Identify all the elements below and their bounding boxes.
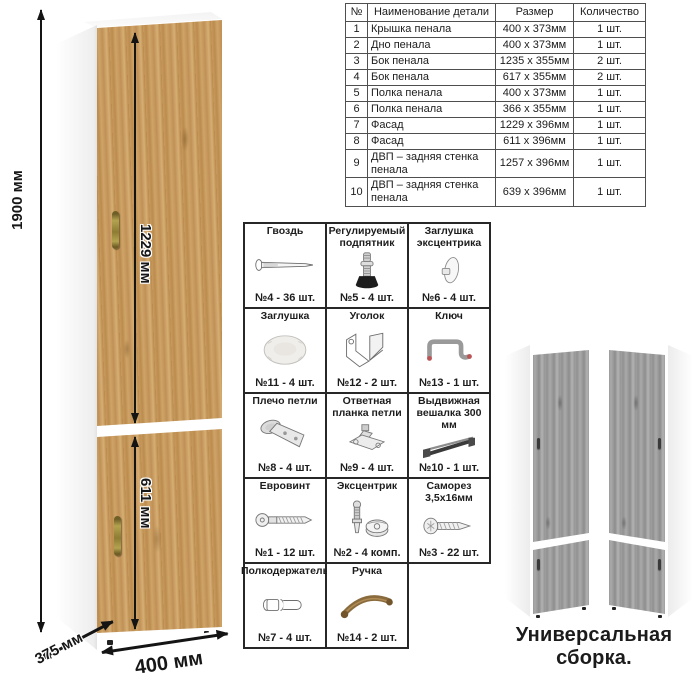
hardware-item: Полкодержатель №7 - 4 шт. bbox=[245, 564, 327, 649]
hardware-item-qty: №14 - 2 шт. bbox=[337, 632, 397, 644]
part-qty: 1 шт. bbox=[574, 38, 646, 54]
part-size: 400 x 373мм bbox=[496, 38, 574, 54]
part-name: Фасад bbox=[368, 134, 496, 150]
part-qty: 1 шт. bbox=[574, 134, 646, 150]
part-number: 2 bbox=[346, 38, 368, 54]
part-size: 611 x 396мм bbox=[496, 134, 574, 150]
pullout-hanger-icon bbox=[419, 431, 479, 462]
hardware-item-name: Ключ bbox=[435, 311, 463, 323]
variant-foot bbox=[536, 615, 540, 618]
hardware-item-name: Ответная планка петли bbox=[328, 396, 406, 420]
upper-door-dimension-label: 1229 мм bbox=[137, 224, 154, 284]
hex-key-icon bbox=[423, 323, 475, 377]
hardware-item-name: Полкодержатель bbox=[241, 566, 329, 578]
corner-bracket-icon bbox=[341, 323, 393, 377]
variant-door-handle bbox=[537, 559, 540, 570]
part-size: 1229 x 396мм bbox=[496, 118, 574, 134]
hardware-item: Ручка №14 - 2 шт. bbox=[327, 564, 409, 649]
part-name: Полка пенала bbox=[368, 102, 496, 118]
table-row: 3Бок пенала1235 x 355мм2 шт. bbox=[346, 54, 646, 70]
hardware-item-name: Эксцентрик bbox=[337, 481, 397, 493]
part-qty: 1 шт. bbox=[574, 102, 646, 118]
self-tapping-screw-icon bbox=[421, 505, 477, 548]
part-qty: 1 шт. bbox=[574, 178, 646, 206]
width-dimension-label: 400 мм bbox=[112, 644, 226, 683]
part-size: 617 x 355мм bbox=[496, 70, 574, 86]
part-name: ДВП – задняя стенка пенала bbox=[368, 178, 496, 206]
part-name: Фасад bbox=[368, 118, 496, 134]
hardware-item: Выдвижная вешалка 300 мм №10 - 1 шт. bbox=[409, 394, 491, 479]
table-row: 10ДВП – задняя стенка пенала639 x 396мм1… bbox=[346, 178, 646, 206]
cam-cover-icon bbox=[432, 250, 466, 293]
hardware-item-qty: №7 - 4 шт. bbox=[258, 632, 312, 644]
part-size: 366 x 355мм bbox=[496, 102, 574, 118]
part-size: 400 x 373мм bbox=[496, 22, 574, 38]
table-row: 8Фасад611 x 396мм1 шт. bbox=[346, 134, 646, 150]
variant-left-side-panel bbox=[505, 345, 530, 617]
table-row: 9ДВП – задняя стенка пенала1257 x 396мм1… bbox=[346, 150, 646, 178]
part-size: 400 x 373мм bbox=[496, 86, 574, 102]
variant-door-handle bbox=[658, 438, 661, 449]
hardware-item-name: Уголок bbox=[350, 311, 385, 323]
variant-right-front bbox=[606, 343, 668, 620]
col-header-number: № bbox=[346, 4, 368, 22]
hardware-item-name: Гвоздь bbox=[267, 226, 304, 238]
hardware-item-qty: №2 - 4 комп. bbox=[333, 547, 400, 559]
hardware-item-name: Заглушка bbox=[261, 311, 310, 323]
hardware-item-qty: №3 - 22 шт. bbox=[419, 547, 479, 559]
hardware-item-name: Регулируемый подпятник bbox=[328, 226, 406, 250]
part-qty: 1 шт. bbox=[574, 86, 646, 102]
hardware-item-qty: №12 - 2 шт. bbox=[337, 377, 397, 389]
hardware-grid: Гвоздь №4 - 36 шт. Регулируемый подпятни… bbox=[243, 222, 491, 649]
col-header-size: Размер bbox=[496, 4, 574, 22]
height-dimension-arrow bbox=[40, 10, 42, 632]
table-row: 4Бок пенала617 x 355мм2 шт. bbox=[346, 70, 646, 86]
part-size: 639 x 396мм bbox=[496, 178, 574, 206]
hardware-item: Евровинт №1 - 12 шт. bbox=[245, 479, 327, 564]
hardware-item-qty: №5 - 4 шт. bbox=[340, 292, 394, 304]
variant-foot bbox=[582, 607, 586, 610]
variant-door-handle bbox=[537, 438, 540, 449]
table-row: 1Крышка пенала400 x 373мм1 шт. bbox=[346, 22, 646, 38]
part-name: Бок пенала bbox=[368, 70, 496, 86]
part-number: 4 bbox=[346, 70, 368, 86]
part-number: 6 bbox=[346, 102, 368, 118]
hardware-item-qty: №1 - 12 шт. bbox=[255, 547, 315, 559]
part-qty: 1 шт. bbox=[574, 22, 646, 38]
hinge-arm-icon bbox=[257, 408, 313, 462]
part-name: ДВП – задняя стенка пенала bbox=[368, 150, 496, 178]
table-row: 5Полка пенала400 x 373мм1 шт. bbox=[346, 86, 646, 102]
part-number: 5 bbox=[346, 86, 368, 102]
parts-table: № Наименование детали Размер Количество … bbox=[345, 3, 646, 207]
variant-cabinet-left bbox=[505, 335, 600, 620]
hardware-item-qty: №6 - 4 шт. bbox=[422, 292, 476, 304]
hardware-item-name: Заглушка эксцентрика bbox=[410, 226, 488, 250]
table-row: 2Дно пенала400 x 373мм1 шт. bbox=[346, 38, 646, 54]
hardware-item: Плечо петли №8 - 4 шт. bbox=[245, 394, 327, 479]
table-row: 7Фасад1229 x 396мм1 шт. bbox=[346, 118, 646, 134]
hardware-item-qty: №8 - 4 шт. bbox=[258, 462, 312, 474]
part-number: 1 bbox=[346, 22, 368, 38]
variant-foot bbox=[612, 607, 616, 610]
part-number: 10 bbox=[346, 178, 368, 206]
adjustable-foot-icon bbox=[352, 250, 382, 293]
hardware-item: Саморез 3,5х16мм №3 - 22 шт. bbox=[409, 479, 491, 564]
euro-screw-icon bbox=[254, 493, 316, 547]
part-size: 1235 x 355мм bbox=[496, 54, 574, 70]
hardware-item: Эксцентрик №2 - 4 комп. bbox=[327, 479, 409, 564]
hardware-item: Ключ №13 - 1 шт. bbox=[409, 309, 491, 394]
hardware-item-name: Саморез 3,5х16мм bbox=[410, 481, 488, 505]
hinge-plate-icon bbox=[344, 420, 390, 463]
part-name: Бок пенала bbox=[368, 54, 496, 70]
hardware-item: Заглушка эксцентрика №6 - 4 шт. bbox=[409, 224, 491, 309]
cabinet-side-panel bbox=[56, 25, 97, 650]
part-number: 9 bbox=[346, 150, 368, 178]
cap-icon bbox=[262, 323, 308, 377]
part-number: 3 bbox=[346, 54, 368, 70]
hardware-item-name: Ручка bbox=[352, 566, 382, 578]
parts-table-header-row: № Наименование детали Размер Количество bbox=[346, 4, 646, 22]
cabinet-front bbox=[97, 19, 222, 656]
hardware-item-name: Плечо петли bbox=[252, 396, 317, 408]
height-dimension-label: 1900 мм bbox=[0, 165, 52, 235]
lower-door-dimension-label: 611 мм bbox=[137, 478, 154, 529]
variant-left-front bbox=[530, 343, 592, 620]
part-name: Крышка пенала bbox=[368, 22, 496, 38]
handle-icon bbox=[337, 578, 397, 632]
part-number: 7 bbox=[346, 118, 368, 134]
hardware-item-qty: №13 - 1 шт. bbox=[419, 377, 479, 389]
cam-lock-icon bbox=[342, 493, 392, 547]
hardware-item: Уголок №12 - 2 шт. bbox=[327, 309, 409, 394]
nail-icon bbox=[253, 238, 317, 292]
hardware-item-name: Евровинт bbox=[260, 481, 311, 493]
col-header-qty: Количество bbox=[574, 4, 646, 22]
lower-door-dimension-arrow bbox=[134, 437, 136, 629]
hardware-item-qty: №11 - 4 шт. bbox=[255, 377, 315, 389]
part-qty: 2 шт. bbox=[574, 70, 646, 86]
depth-dimension-label: 375 мм bbox=[28, 627, 91, 671]
part-qty: 1 шт. bbox=[574, 150, 646, 178]
part-qty: 2 шт. bbox=[574, 54, 646, 70]
hardware-item-qty: №10 - 1 шт. bbox=[419, 462, 479, 474]
variant-right-side-panel bbox=[668, 345, 693, 617]
hardware-item-qty: №9 - 4 шт. bbox=[340, 462, 394, 474]
upper-door-handle bbox=[112, 211, 119, 249]
hardware-item: Гвоздь №4 - 36 шт. bbox=[245, 224, 327, 309]
variant-door-handle bbox=[658, 559, 661, 570]
assembly-instruction-sheet: 1900 мм 1229 мм 611 мм 375 мм 400 мм № Н… bbox=[0, 0, 700, 683]
part-number: 8 bbox=[346, 134, 368, 150]
hardware-item-name: Выдвижная вешалка 300 мм bbox=[410, 396, 488, 431]
hardware-item: Регулируемый подпятник №5 - 4 шт. bbox=[327, 224, 409, 309]
col-header-part: Наименование детали bbox=[368, 4, 496, 22]
part-name: Полка пенала bbox=[368, 86, 496, 102]
variant-cabinet-right bbox=[598, 335, 693, 620]
hardware-item: Заглушка №11 - 4 шт. bbox=[245, 309, 327, 394]
hardware-item: Ответная планка петли №9 - 4 шт. bbox=[327, 394, 409, 479]
hardware-item-qty: №4 - 36 шт. bbox=[255, 292, 315, 304]
variant-foot bbox=[658, 615, 662, 618]
universal-assembly-caption: Универсальная сборка. bbox=[488, 624, 700, 670]
upper-door-dimension-arrow bbox=[134, 33, 136, 423]
lower-door-handle bbox=[114, 516, 121, 556]
table-row: 6Полка пенала366 x 355мм1 шт. bbox=[346, 102, 646, 118]
part-qty: 1 шт. bbox=[574, 118, 646, 134]
part-size: 1257 x 396мм bbox=[496, 150, 574, 178]
part-name: Дно пенала bbox=[368, 38, 496, 54]
shelf-pin-icon bbox=[259, 578, 311, 632]
